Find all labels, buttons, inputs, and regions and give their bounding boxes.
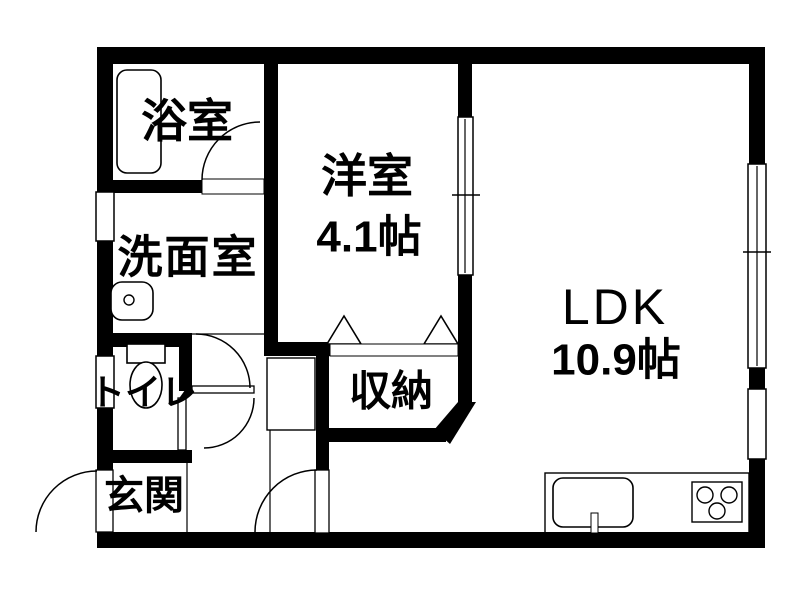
label-washroom: 洗面室 xyxy=(117,232,258,283)
washbasin-icon xyxy=(111,282,153,320)
washroom-door-leaf xyxy=(192,386,254,393)
wall-storage-west xyxy=(316,347,329,470)
label-bathroom: 浴室 xyxy=(141,95,233,147)
label-ldk-size: 10.9帖 xyxy=(551,336,681,385)
floor-plan-canvas: 浴室 洗面室 トイレ 玄関 洋室 4.1帖 収納 LDK 10.9帖 xyxy=(0,0,800,600)
label-ldk: LDK xyxy=(562,279,668,335)
window-kitchen-east xyxy=(748,389,766,459)
faucet-icon xyxy=(591,513,598,533)
storage-front-track xyxy=(330,344,458,356)
label-entrance: 玄関 xyxy=(104,474,184,518)
floor-plan: 浴室 洗面室 トイレ 玄関 洋室 4.1帖 収納 LDK 10.9帖 xyxy=(0,0,800,600)
label-storage: 収納 xyxy=(349,368,433,415)
wall-top xyxy=(97,47,765,64)
label-toilet: トイレ xyxy=(89,372,197,413)
wall-entrance-north xyxy=(97,450,192,463)
wall-bottom xyxy=(97,532,765,548)
wall-leftcol-east xyxy=(264,47,278,356)
window-washroom xyxy=(96,192,114,241)
wall-storage-south xyxy=(316,428,446,442)
label-western-room: 洋室 xyxy=(321,150,413,202)
hall-door-leaf xyxy=(315,470,329,533)
bathroom-doorway xyxy=(202,179,264,194)
label-western-room-size: 4.1帖 xyxy=(316,213,421,262)
